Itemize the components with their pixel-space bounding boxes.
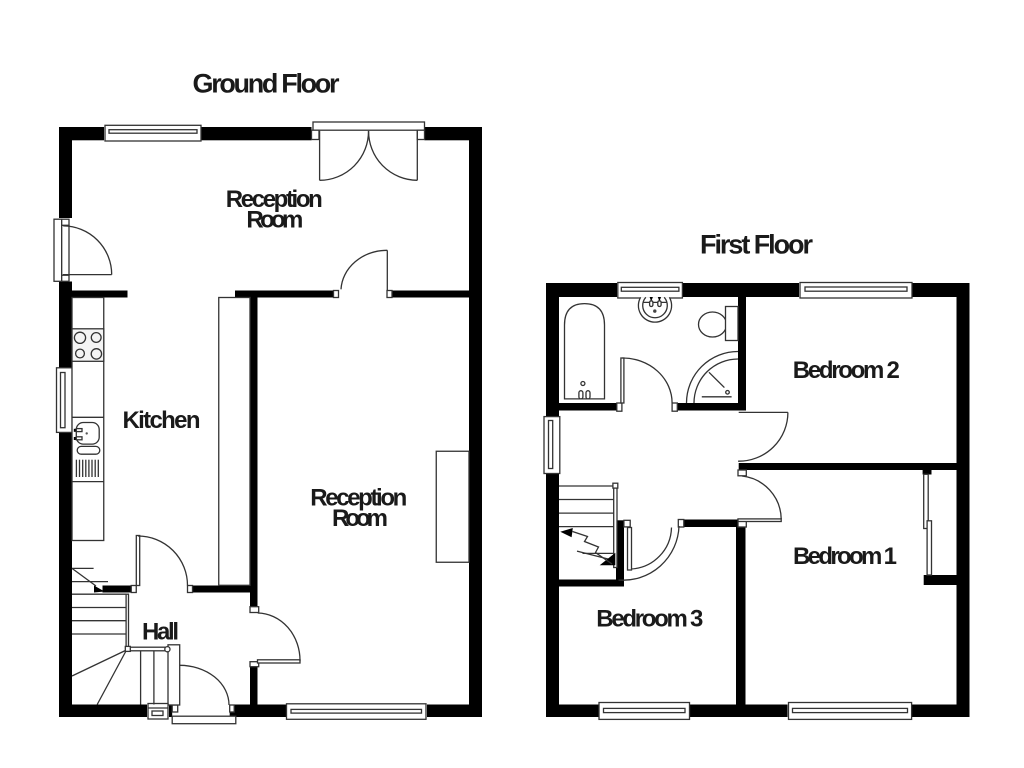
svg-text:Hall: Hall bbox=[142, 619, 179, 646]
svg-text:Kitchen: Kitchen bbox=[123, 407, 201, 434]
svg-text:Bedroom 3: Bedroom 3 bbox=[596, 606, 703, 633]
svg-text:Room: Room bbox=[332, 505, 388, 532]
svg-text:Room: Room bbox=[246, 207, 303, 234]
svg-text:Bedroom 1: Bedroom 1 bbox=[793, 543, 897, 570]
svg-text:Bedroom 2: Bedroom 2 bbox=[793, 357, 900, 384]
svg-text:Ground Floor: Ground Floor bbox=[193, 69, 340, 99]
svg-text:First Floor: First Floor bbox=[700, 230, 813, 260]
